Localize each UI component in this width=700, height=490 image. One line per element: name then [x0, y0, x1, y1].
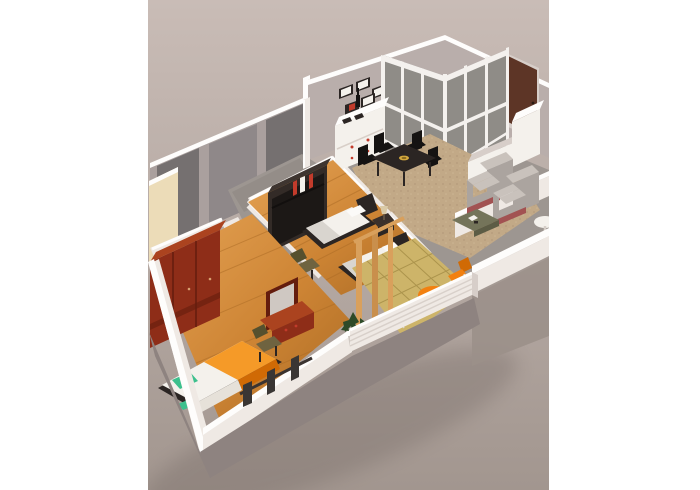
page — [0, 0, 700, 490]
right-margin — [549, 0, 700, 490]
left-margin — [0, 0, 148, 490]
render-canvas — [0, 0, 700, 490]
floorplan-render — [0, 0, 700, 490]
door-knob — [532, 102, 535, 105]
